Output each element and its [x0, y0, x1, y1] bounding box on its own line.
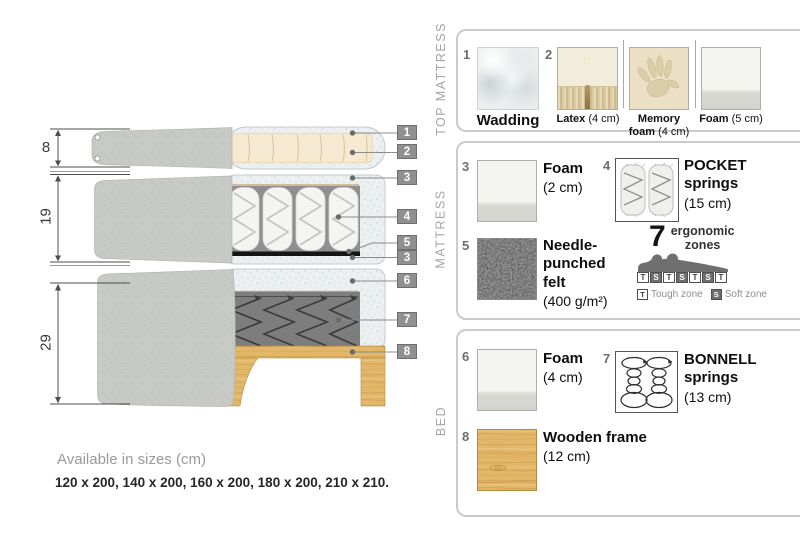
felt-name: Needle-punched felt: [543, 237, 606, 291]
latex-name: Latex: [557, 113, 586, 125]
mattress-button: [95, 156, 100, 161]
bed-section-label: BED: [434, 406, 448, 436]
foam-5cm-swatch: [701, 47, 761, 110]
memory-foam-handprint: [630, 48, 688, 109]
wadding-caption: Wadding: [468, 112, 548, 130]
wooden-leg-right: [361, 358, 385, 406]
pocket-springs-detail: (15 cm): [684, 195, 776, 212]
foam-4cm-swatch: [477, 349, 537, 411]
zone-box-s: S: [702, 272, 714, 283]
foam-5cm-name: Foam: [699, 113, 728, 125]
mattress-cutaway: [226, 175, 385, 264]
latex-notch: [585, 85, 590, 109]
felt-text: Needle-punched felt (400 g/m²): [543, 237, 625, 310]
top-mattress-section-label: TOP MATTRESS: [434, 22, 448, 136]
pocket-springs-text: POCKET springs (15 cm): [684, 157, 776, 212]
felt-detail: (400 g/m²): [543, 293, 625, 310]
bed-cutaway: [224, 269, 385, 406]
top-mattress-fabric: [92, 128, 232, 169]
zones-label: ergonomic zones: [671, 224, 735, 253]
pocket-springs-drawing: [616, 159, 678, 221]
bonnell-springs-text: BONNELL springs (13 cm): [684, 351, 776, 406]
bonnell-springs-detail: (13 cm): [684, 389, 776, 406]
ergonomic-zones-heading: 7 ergonomic zones: [649, 222, 735, 253]
foam-2cm-text: Foam (2 cm): [543, 160, 623, 196]
wooden-frame-text: Wooden frame (12 cm): [543, 429, 693, 465]
dimension-label-top-mattress: 8: [37, 139, 55, 156]
latex-sparkle: [584, 58, 590, 64]
zones-count: 7: [649, 222, 666, 252]
zones-label-line1: ergonomic: [671, 224, 735, 238]
callout-7-bonnell: 7: [397, 312, 417, 327]
mattress-fabric: [95, 176, 233, 263]
dimension-label-mattress: 19: [38, 201, 55, 233]
latex-detail: (4 cm): [588, 113, 619, 125]
callout-8-frame: 8: [397, 344, 417, 359]
memory-foam-detail: (4 cm): [658, 126, 689, 138]
legend-num-latex: 2: [545, 47, 552, 62]
option-divider: [623, 40, 624, 108]
latex-caption: Latex (4 cm): [550, 113, 626, 126]
wooden-frame-name: Wooden frame: [543, 429, 647, 446]
soft-zone-key-label: Soft zone: [725, 289, 767, 300]
legend-num-foam-4cm: 6: [462, 349, 469, 364]
callout-6-foam-bed: 6: [397, 273, 417, 288]
lying-person-icon: [635, 250, 731, 273]
callout-3-foam-bottom: 3: [397, 250, 417, 265]
wood-texture: [478, 430, 536, 490]
felt-layer: [228, 252, 360, 257]
callout-4-pocket: 4: [397, 209, 417, 224]
zone-box-t: T: [689, 272, 701, 283]
bonnell-springs-drawing: [616, 352, 677, 412]
mattress-section-label-wrap: MATTRESS: [426, 141, 456, 316]
legend-num-bonnell: 7: [603, 351, 610, 366]
bed-fabric: [98, 270, 236, 407]
tough-zone-key-label: Tough zone: [651, 289, 703, 300]
zone-box-t: T: [715, 272, 727, 283]
bed-section-label-wrap: BED: [426, 329, 456, 513]
foam-5cm-caption: Foam (5 cm): [696, 113, 766, 126]
foam-4cm-detail: (4 cm): [543, 369, 623, 386]
legend-num-wooden-frame: 8: [462, 429, 469, 444]
bonnell-springs-swatch: [615, 351, 678, 413]
callout-1-wadding: 1: [397, 125, 417, 140]
felt-texture: [478, 239, 536, 299]
foam-4cm-name: Foam: [543, 350, 583, 367]
latex-swatch: [557, 47, 618, 110]
bonnell-springs-name: BONNELL springs: [684, 351, 756, 386]
mattress-section-label: MATTRESS: [434, 189, 448, 268]
memory-foam-swatch: [629, 47, 689, 110]
zone-box-s: S: [676, 272, 688, 283]
foam-4cm-text: Foam (4 cm): [543, 350, 623, 386]
foam-2cm-name: Foam: [543, 160, 583, 177]
soft-zone-key-icon: S: [711, 289, 722, 300]
legend-num-wadding: 1: [463, 47, 470, 62]
mattress-construction-infographic: 8 19 29 1 2 3 4 5 3 6 7 8 Available in s…: [0, 0, 800, 533]
foam-2cm-swatch: [477, 160, 537, 222]
legend-num-foam-2cm: 3: [462, 159, 469, 174]
wadding-swatch: [477, 47, 539, 110]
zone-box-s: S: [650, 272, 662, 283]
option-divider: [695, 40, 696, 108]
pocket-springs-swatch: [615, 158, 679, 222]
tough-zone-key-icon: T: [637, 289, 648, 300]
pocket-springs-name: POCKET springs: [684, 157, 747, 192]
top-mattress-section-label-wrap: TOP MATTRESS: [426, 30, 456, 128]
wadding-name: Wadding: [477, 112, 540, 129]
memory-foam-caption: Memory foam (4 cm): [624, 113, 694, 139]
mattress-button: [95, 135, 100, 140]
wooden-frame-detail: (12 cm): [543, 448, 693, 465]
legend-num-pocket: 4: [603, 158, 610, 173]
foam-2cm-detail: (2 cm): [543, 179, 623, 196]
dimension-label-bed: 29: [38, 327, 55, 359]
callout-3-foam-top: 3: [397, 170, 417, 185]
zone-pattern-row: T S T S T S T: [637, 272, 727, 283]
callout-5-felt: 5: [397, 235, 417, 250]
wooden-frame-swatch: [477, 429, 537, 491]
callout-2-latex: 2: [397, 144, 417, 159]
available-sizes-values: 120 x 200, 140 x 200, 160 x 200, 180 x 2…: [55, 475, 389, 490]
felt-swatch: [477, 238, 537, 300]
legend-num-felt: 5: [462, 238, 469, 253]
foam-5cm-detail: (5 cm): [732, 113, 763, 125]
zone-key: T Tough zone S Soft zone: [637, 289, 772, 300]
zone-box-t: T: [637, 272, 649, 283]
zone-box-t: T: [663, 272, 675, 283]
available-sizes-title: Available in sizes (cm): [57, 451, 206, 468]
